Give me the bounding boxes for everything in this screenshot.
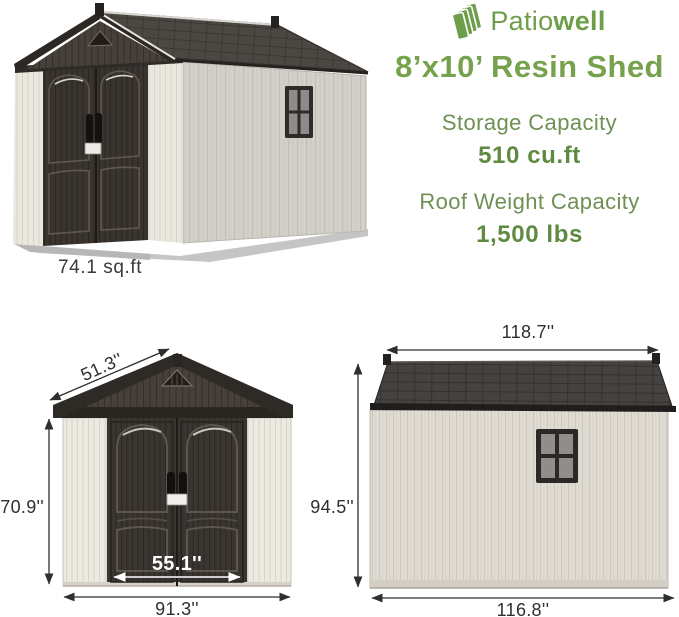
side-height-label: 94.5'' — [294, 497, 354, 518]
brand-logo: Patiowell — [380, 3, 679, 39]
front-total-width-label: 91.3'' — [127, 599, 227, 617]
roof-weight-value: 1,500 lbs — [380, 221, 679, 249]
shed-product-infographic: 74.1 sq.ft Patiowell 8’x10’ Resin Shed S… — [0, 0, 679, 617]
shed-side-view — [330, 318, 679, 617]
side-wall — [183, 62, 366, 243]
storage-capacity-value: 510 cu.ft — [380, 142, 679, 170]
storage-capacity-label: Storage Capacity — [380, 110, 679, 136]
roof-weight-label: Roof Weight Capacity — [380, 189, 679, 215]
front-finial — [95, 3, 104, 16]
front-wall-height-label: 70.9'' — [0, 497, 44, 518]
floor-area-label: 74.1 sq.ft — [58, 257, 142, 279]
front-door-width-label: 55.1'' — [127, 553, 227, 576]
brand-name: Patiowell — [490, 6, 605, 37]
side-wall-length-label: 116.8'' — [473, 600, 573, 617]
front-view-finial — [173, 354, 182, 367]
side-finial-right — [652, 353, 660, 364]
shed-3d-view — [0, 0, 380, 300]
side-finial-left — [383, 354, 391, 365]
side-wall-elevation — [370, 410, 668, 588]
patiowell-leaf-logo-icon — [453, 3, 483, 39]
side-roof — [370, 353, 676, 412]
side-window — [285, 86, 313, 138]
side-elevation-window — [536, 429, 578, 483]
product-title: 8’x10’ Resin Shed — [380, 49, 679, 85]
rear-finial — [271, 16, 279, 28]
side-roof-length-label: 118.7'' — [478, 322, 578, 343]
